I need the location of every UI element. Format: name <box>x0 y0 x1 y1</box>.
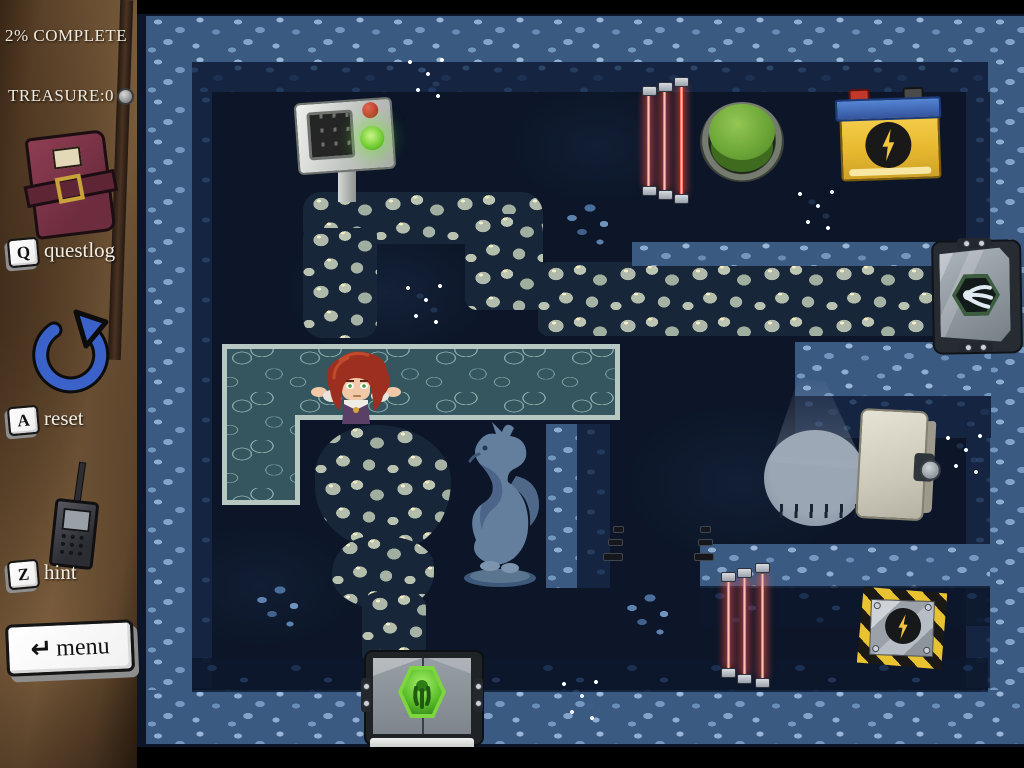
rivet <box>978 239 985 246</box>
dragon-statue <box>452 420 552 590</box>
screw <box>872 645 879 652</box>
blue-plant <box>560 198 622 254</box>
hint-radio-icon[interactable] <box>46 462 98 566</box>
button-top <box>709 104 775 160</box>
safe-dial-knob <box>919 459 941 481</box>
hint-label: hint <box>44 560 77 585</box>
hazard-bolt-badge <box>884 607 921 644</box>
screw <box>874 602 881 609</box>
key-q[interactable]: Q <box>7 237 40 269</box>
laser-emitter-cap <box>658 190 673 200</box>
strap-pin <box>117 88 134 105</box>
laser-emitter-cap <box>674 77 689 87</box>
hazard-plate-face <box>869 599 935 657</box>
lightning-bolt-icon <box>876 129 901 162</box>
player-character <box>310 348 402 424</box>
terminal-keys <box>309 113 352 158</box>
menu-label: menu <box>56 633 110 662</box>
rivet <box>475 683 482 690</box>
terminal-green-light <box>359 125 385 151</box>
flower-patch <box>398 52 450 106</box>
hedge-border-top <box>146 16 1024 62</box>
stone-path-arch-left-leg <box>303 228 377 338</box>
game-screen: 2% COMPLETE TREASURE:0 Q questlog A rese… <box>0 0 1024 768</box>
return-arrow-icon: ↵ <box>30 634 53 665</box>
laser-beam <box>646 94 651 186</box>
off-laser-emitter <box>613 526 624 533</box>
laser-emitter-cap <box>674 194 689 204</box>
door-hinge-right <box>473 678 483 712</box>
flower-patch <box>788 184 864 230</box>
stone-path-south-blob <box>315 425 451 549</box>
book-buckle <box>55 173 85 203</box>
laser-emitter-cap <box>721 572 736 582</box>
laser-beam <box>742 578 747 674</box>
battery-top <box>835 96 942 122</box>
laser-beam <box>760 574 765 678</box>
questlog-label: questlog <box>44 238 115 263</box>
hedge-border-left-shadow <box>192 92 212 688</box>
exit-door-right <box>931 239 1019 350</box>
laser-emitter-cap <box>755 678 770 688</box>
radio-keypad <box>58 532 86 557</box>
big-green-button <box>700 96 784 182</box>
laser-emitter-cap <box>755 563 770 573</box>
door-hinge-bottom <box>959 342 993 353</box>
spotlight-pool <box>764 430 866 526</box>
laser-emitter-cap <box>658 82 673 92</box>
key-a[interactable]: A <box>7 405 40 437</box>
key-z[interactable]: Z <box>7 559 40 591</box>
stone-path-east-corridor <box>538 262 952 336</box>
exit-door-bottom <box>364 650 480 754</box>
radio-screen <box>61 508 91 533</box>
hedge-border-left <box>146 16 192 744</box>
hedge-column-by-dragon-shadow <box>577 424 610 588</box>
key-q-label: Q <box>16 242 31 263</box>
reset-label: reset <box>44 406 84 431</box>
blue-flower-plant <box>396 278 456 334</box>
treasure-counter: TREASURE:0 <box>8 86 114 106</box>
off-laser-emitter <box>603 553 623 561</box>
hud-sidebar: 2% COMPLETE TREASURE:0 Q questlog A rese… <box>0 0 137 768</box>
battery <box>834 86 941 182</box>
laser-emitter-cap <box>642 186 657 196</box>
hazard-floor-plate <box>857 586 948 669</box>
lightning-bolt-icon <box>894 614 913 640</box>
screw <box>925 604 932 611</box>
progress-text: 2% COMPLETE <box>5 26 127 46</box>
off-laser-emitter <box>700 526 711 533</box>
rivet <box>363 700 370 707</box>
blue-plant <box>250 580 302 642</box>
laser-beam <box>662 90 667 190</box>
laser-beam <box>726 580 731 668</box>
wing-emblem-icon <box>408 678 436 710</box>
frame-strip-top <box>137 0 1024 14</box>
laser-beam <box>679 86 684 194</box>
wing-emblem-icon <box>960 280 995 311</box>
laser-emitter-cap <box>721 668 736 678</box>
rivet <box>963 240 970 247</box>
grass-tufts <box>774 504 856 518</box>
terminal-desk <box>294 97 397 176</box>
rivet <box>980 343 987 350</box>
off-laser-emitter <box>698 539 713 546</box>
rivet <box>363 683 370 690</box>
key-z-label: Z <box>17 564 30 585</box>
safe <box>855 408 943 524</box>
terminal-keypad <box>306 109 355 160</box>
rivet <box>965 344 972 351</box>
book-label <box>52 146 82 169</box>
flower-patch <box>552 674 610 722</box>
reset-circular-arrow-icon[interactable] <box>28 308 116 400</box>
terminal-red-light <box>362 102 379 119</box>
flower-patch <box>936 428 994 500</box>
door-hinge-top <box>957 238 991 249</box>
off-laser-emitter <box>608 539 623 546</box>
laser-emitter-cap <box>737 568 752 578</box>
blue-plant <box>620 588 684 650</box>
door-hinge-left <box>361 678 371 712</box>
terminal-base <box>324 198 370 210</box>
frame-strip-bottom <box>137 747 1024 768</box>
laser-emitter-cap <box>642 86 657 96</box>
off-laser-emitter <box>694 553 714 561</box>
hedge-border-right <box>988 16 1024 744</box>
menu-button[interactable]: ↵ menu <box>5 619 135 677</box>
rivet <box>475 700 482 707</box>
key-a-label: A <box>17 410 31 431</box>
stone-path-arch-right-leg <box>465 214 543 310</box>
questlog-book-icon[interactable] <box>24 130 109 234</box>
screw <box>923 647 930 654</box>
control-terminal <box>294 94 394 210</box>
laser-emitter-cap <box>737 674 752 684</box>
